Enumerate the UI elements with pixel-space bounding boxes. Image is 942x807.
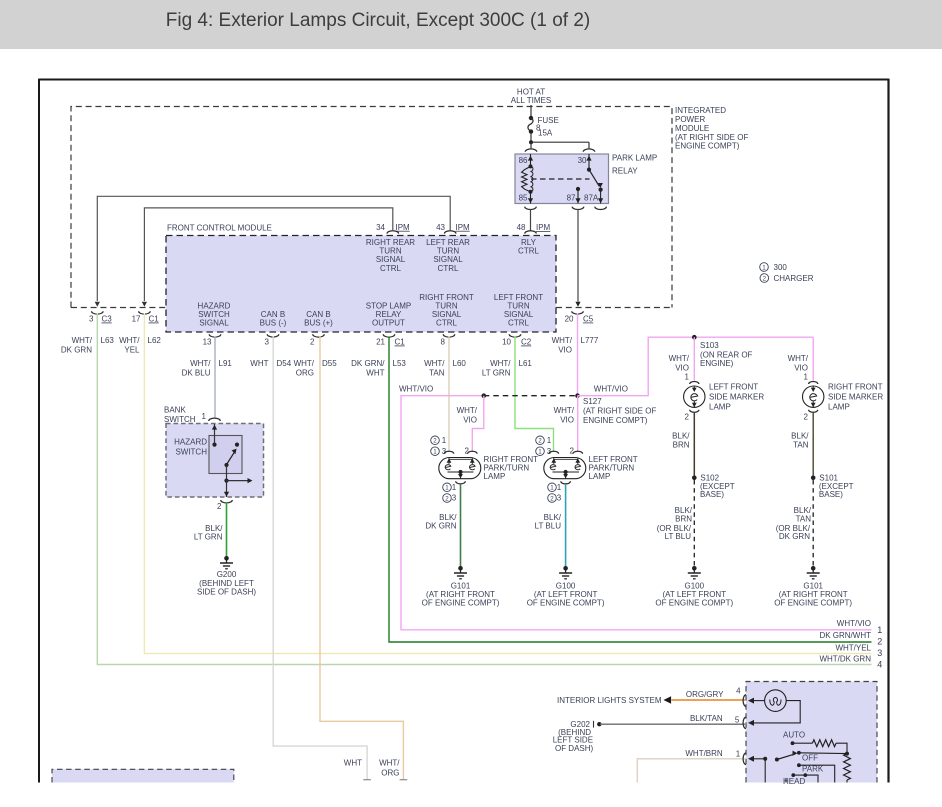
svg-text:2: 2 — [465, 447, 470, 456]
svg-text:ORG: ORG — [381, 768, 399, 777]
svg-text:OFF: OFF — [802, 753, 818, 762]
svg-text:1: 1 — [762, 264, 766, 271]
svg-text:2: 2 — [310, 338, 315, 347]
svg-text:AUTO: AUTO — [783, 730, 805, 739]
svg-text:1: 1 — [685, 373, 690, 382]
svg-text:D55: D55 — [322, 359, 337, 368]
svg-text:BUS (+): BUS (+) — [304, 319, 333, 328]
svg-text:3: 3 — [877, 648, 882, 658]
svg-text:13: 13 — [203, 338, 212, 347]
svg-text:87: 87 — [567, 194, 576, 203]
svg-text:SWITCH: SWITCH — [175, 447, 207, 456]
svg-text:WHT/: WHT/ — [379, 758, 400, 767]
svg-text:34: 34 — [376, 223, 385, 232]
svg-text:20: 20 — [565, 315, 574, 324]
svg-text:WHT: WHT — [344, 758, 362, 767]
svg-text:5: 5 — [735, 715, 740, 724]
svg-text:1: 1 — [550, 485, 554, 492]
svg-text:LT BLU: LT BLU — [535, 521, 562, 530]
svg-text:VIO: VIO — [675, 363, 689, 372]
svg-text:IPM: IPM — [536, 223, 551, 232]
svg-text:2: 2 — [804, 412, 809, 421]
svg-text:CHARGER: CHARGER — [774, 274, 814, 283]
svg-text:WHT/VIO: WHT/VIO — [399, 384, 433, 393]
svg-text:Fig 4: Exterior Lamps Circuit,: Fig 4: Exterior Lamps Circuit, Except 30… — [166, 10, 591, 31]
svg-text:WHT/VIO: WHT/VIO — [837, 619, 871, 628]
svg-text:2: 2 — [570, 447, 575, 456]
svg-text:2: 2 — [217, 502, 222, 511]
svg-text:SIDE MARKER: SIDE MARKER — [709, 393, 764, 402]
svg-text:VIO: VIO — [463, 415, 477, 424]
svg-text:BRN: BRN — [675, 515, 692, 524]
svg-text:SIDE OF DASH): SIDE OF DASH) — [197, 587, 256, 596]
svg-text:OF ENGINE COMPT): OF ENGINE COMPT) — [774, 599, 852, 608]
svg-text:PARK: PARK — [802, 764, 824, 773]
svg-text:C3: C3 — [102, 315, 113, 324]
svg-text:(ON REAR OF: (ON REAR OF — [700, 350, 753, 359]
svg-text:87A: 87A — [584, 194, 599, 203]
svg-text:INTERIOR LIGHTS SYSTEM: INTERIOR LIGHTS SYSTEM — [557, 696, 662, 705]
svg-text:21: 21 — [376, 338, 385, 347]
svg-text:48: 48 — [517, 223, 526, 232]
svg-text:(AT RIGHT SIDE OF: (AT RIGHT SIDE OF — [583, 407, 656, 416]
svg-text:WHT/: WHT/ — [424, 359, 445, 368]
svg-text:2: 2 — [763, 275, 767, 282]
svg-text:CTRL: CTRL — [508, 319, 529, 328]
svg-text:1: 1 — [202, 412, 207, 421]
svg-text:L53: L53 — [393, 359, 407, 368]
svg-text:L61: L61 — [519, 359, 533, 368]
svg-text:WHT: WHT — [250, 359, 268, 368]
svg-text:WHT/BRN: WHT/BRN — [685, 749, 723, 758]
svg-text:WHT/VIO: WHT/VIO — [594, 384, 628, 393]
svg-text:1: 1 — [547, 436, 552, 445]
svg-text:DK GRN: DK GRN — [779, 532, 810, 541]
svg-text:ENGINE COMPT): ENGINE COMPT) — [583, 416, 648, 425]
svg-text:4: 4 — [877, 660, 882, 670]
svg-text:DK GRN: DK GRN — [425, 521, 456, 530]
svg-text:85: 85 — [519, 194, 528, 203]
svg-text:4: 4 — [736, 687, 741, 696]
svg-text:SWITCH: SWITCH — [164, 415, 196, 424]
svg-text:WHT/: WHT/ — [190, 359, 211, 368]
svg-text:3: 3 — [265, 338, 270, 347]
svg-text:WHT/: WHT/ — [294, 359, 315, 368]
svg-text:L777: L777 — [581, 336, 599, 345]
svg-text:OF ENGINE COMPT): OF ENGINE COMPT) — [422, 599, 500, 608]
svg-text:IPM: IPM — [396, 223, 411, 232]
svg-text:BLK/: BLK/ — [791, 432, 809, 441]
svg-text:LAMP: LAMP — [828, 403, 850, 412]
svg-text:G200: G200 — [217, 570, 237, 579]
svg-text:RIGHT FRONT: RIGHT FRONT — [828, 383, 883, 392]
svg-text:1: 1 — [445, 485, 449, 492]
svg-text:WHT/: WHT/ — [457, 406, 478, 415]
svg-text:WHT/: WHT/ — [72, 336, 93, 345]
svg-text:BLK/: BLK/ — [672, 432, 690, 441]
svg-text:OF ENGINE COMPT): OF ENGINE COMPT) — [655, 599, 733, 608]
svg-text:WHT/: WHT/ — [490, 359, 511, 368]
svg-text:43: 43 — [436, 223, 445, 232]
svg-text:IPM: IPM — [456, 223, 471, 232]
svg-text:VIO: VIO — [560, 415, 574, 424]
svg-text:3: 3 — [89, 315, 94, 324]
svg-text:CTRL: CTRL — [518, 247, 539, 256]
svg-text:LAMP: LAMP — [589, 472, 611, 481]
svg-text:LT GRN: LT GRN — [482, 368, 511, 377]
svg-text:HAZARD: HAZARD — [174, 437, 207, 446]
svg-text:DK GRN: DK GRN — [61, 345, 92, 354]
svg-text:OF DASH): OF DASH) — [555, 744, 594, 753]
svg-text:WHT/: WHT/ — [552, 336, 573, 345]
svg-text:LT GRN: LT GRN — [194, 532, 223, 541]
svg-text:C1: C1 — [149, 315, 160, 324]
svg-text:1: 1 — [433, 449, 437, 456]
svg-text:FRONT CONTROL MODULE: FRONT CONTROL MODULE — [167, 223, 272, 232]
svg-text:ORG/GRY: ORG/GRY — [686, 690, 724, 699]
svg-text:15A: 15A — [538, 128, 553, 137]
svg-text:WHT: WHT — [366, 368, 384, 377]
svg-text:2: 2 — [433, 438, 437, 445]
svg-text:1: 1 — [557, 483, 562, 492]
svg-text:LAMP: LAMP — [484, 472, 506, 481]
svg-text:WHT/DK GRN: WHT/DK GRN — [819, 655, 871, 664]
svg-text:1: 1 — [804, 373, 809, 382]
svg-text:S127: S127 — [583, 397, 602, 406]
svg-text:2: 2 — [538, 438, 542, 445]
svg-text:LAMP: LAMP — [709, 403, 731, 412]
svg-text:MODULE: MODULE — [675, 124, 709, 133]
svg-text:VIO: VIO — [558, 345, 572, 354]
svg-text:C2: C2 — [521, 338, 532, 347]
svg-text:CTRL: CTRL — [436, 319, 457, 328]
svg-text:TAN: TAN — [793, 441, 809, 450]
svg-text:FUSE: FUSE — [538, 116, 559, 125]
svg-text:BASE): BASE) — [819, 490, 843, 499]
svg-text:RELAY: RELAY — [612, 167, 638, 176]
svg-text:OF ENGINE COMPT): OF ENGINE COMPT) — [527, 599, 605, 608]
svg-text:C5: C5 — [583, 315, 594, 324]
svg-text:10: 10 — [502, 338, 511, 347]
svg-text:2: 2 — [685, 412, 690, 421]
svg-text:8: 8 — [441, 338, 446, 347]
svg-text:ENGINE COMPT): ENGINE COMPT) — [675, 141, 740, 150]
svg-text:ORG: ORG — [296, 368, 314, 377]
svg-text:1: 1 — [442, 436, 447, 445]
svg-text:1: 1 — [877, 625, 882, 635]
svg-text:CTRL: CTRL — [438, 264, 459, 273]
svg-text:PARK LAMP: PARK LAMP — [612, 153, 657, 162]
svg-text:L91: L91 — [219, 359, 233, 368]
svg-text:2: 2 — [445, 495, 449, 502]
svg-text:1: 1 — [736, 749, 741, 758]
svg-text:C1: C1 — [395, 338, 406, 347]
svg-text:D54: D54 — [277, 359, 292, 368]
svg-text:BUS (-): BUS (-) — [260, 319, 287, 328]
svg-text:DK GRN/WHT: DK GRN/WHT — [819, 631, 871, 640]
svg-text:ALL TIMES: ALL TIMES — [511, 96, 551, 105]
svg-text:3: 3 — [452, 494, 457, 503]
svg-text:WHT/: WHT/ — [788, 354, 809, 363]
svg-text:LT BLU: LT BLU — [665, 532, 692, 541]
svg-text:30: 30 — [578, 156, 587, 165]
svg-text:ENGINE): ENGINE) — [700, 359, 734, 368]
svg-text:TAN: TAN — [429, 368, 445, 377]
svg-text:CTRL: CTRL — [380, 264, 401, 273]
svg-text:SIDE MARKER: SIDE MARKER — [828, 393, 883, 402]
svg-text:VIO: VIO — [794, 363, 808, 372]
svg-text:2: 2 — [877, 637, 882, 647]
svg-text:L62: L62 — [148, 336, 162, 345]
svg-text:300: 300 — [774, 263, 788, 272]
svg-text:1: 1 — [452, 483, 457, 492]
svg-text:SIGNAL: SIGNAL — [199, 319, 229, 328]
svg-text:LEFT FRONT: LEFT FRONT — [709, 383, 758, 392]
svg-text:L63: L63 — [101, 336, 115, 345]
svg-text:YEL: YEL — [124, 345, 140, 354]
svg-text:OUTPUT: OUTPUT — [372, 319, 405, 328]
svg-text:L60: L60 — [453, 359, 467, 368]
svg-text:2: 2 — [550, 495, 554, 502]
svg-text:WHT/YEL: WHT/YEL — [835, 644, 871, 653]
svg-text:S103: S103 — [700, 341, 719, 350]
svg-text:BRN: BRN — [673, 441, 690, 450]
svg-text:BASE): BASE) — [700, 490, 724, 499]
svg-text:86: 86 — [519, 156, 528, 165]
svg-text:INTEGRATED: INTEGRATED — [675, 106, 726, 115]
svg-text:WHT/: WHT/ — [119, 336, 140, 345]
svg-text:3: 3 — [557, 494, 562, 503]
svg-text:DK BLU: DK BLU — [182, 368, 211, 377]
svg-text:BANK: BANK — [164, 406, 186, 415]
svg-text:17: 17 — [132, 315, 141, 324]
svg-text:1: 1 — [538, 449, 542, 456]
svg-text:DK GRN/: DK GRN/ — [351, 359, 385, 368]
svg-text:TAN: TAN — [796, 515, 812, 524]
svg-text:WHT/: WHT/ — [554, 406, 575, 415]
svg-text:WHT/: WHT/ — [669, 354, 690, 363]
svg-text:BLK/TAN: BLK/TAN — [690, 714, 723, 723]
